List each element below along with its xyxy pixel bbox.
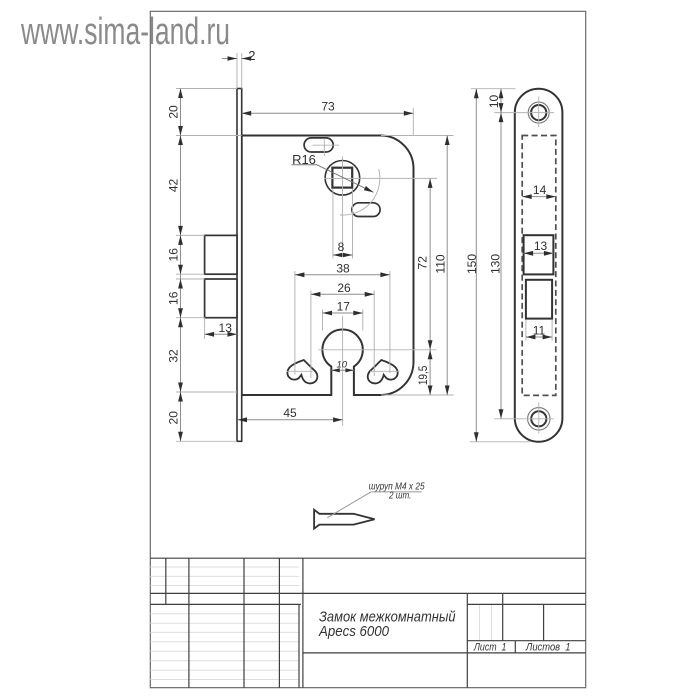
svg-text:16: 16 bbox=[166, 248, 180, 262]
svg-text:20: 20 bbox=[166, 105, 180, 119]
svg-text:72: 72 bbox=[416, 256, 430, 270]
svg-text:130: 130 bbox=[488, 254, 502, 274]
svg-text:11: 11 bbox=[533, 323, 546, 337]
svg-text:150: 150 bbox=[465, 254, 479, 274]
svg-text:2 шт.: 2 шт. bbox=[388, 490, 411, 501]
svg-text:42: 42 bbox=[166, 179, 180, 193]
svg-text:14: 14 bbox=[533, 183, 547, 197]
svg-text:Листов 1: Листов 1 bbox=[525, 642, 570, 654]
svg-text:110: 110 bbox=[433, 254, 447, 273]
svg-text:8: 8 bbox=[338, 240, 345, 254]
svg-text:Apecs 6000: Apecs 6000 bbox=[318, 623, 389, 640]
svg-text:13: 13 bbox=[534, 239, 548, 253]
svg-text:20: 20 bbox=[166, 411, 180, 425]
svg-text:10: 10 bbox=[487, 95, 501, 109]
svg-text:32: 32 bbox=[166, 349, 180, 363]
svg-text:13: 13 bbox=[219, 321, 233, 335]
svg-text:R16: R16 bbox=[292, 152, 316, 167]
svg-text:73: 73 bbox=[321, 99, 335, 113]
svg-text:26: 26 bbox=[337, 281, 351, 295]
svg-text:19,5: 19,5 bbox=[416, 365, 430, 385]
svg-text:45: 45 bbox=[283, 406, 297, 420]
svg-text:10: 10 bbox=[337, 360, 348, 371]
svg-text:16: 16 bbox=[166, 291, 180, 305]
svg-text:17: 17 bbox=[337, 300, 351, 314]
svg-text:2: 2 bbox=[248, 48, 255, 63]
svg-text:Лист 1: Лист 1 bbox=[473, 642, 506, 654]
svg-text:www.sima-land.ru: www.sima-land.ru bbox=[20, 11, 230, 53]
svg-text:38: 38 bbox=[336, 261, 350, 275]
